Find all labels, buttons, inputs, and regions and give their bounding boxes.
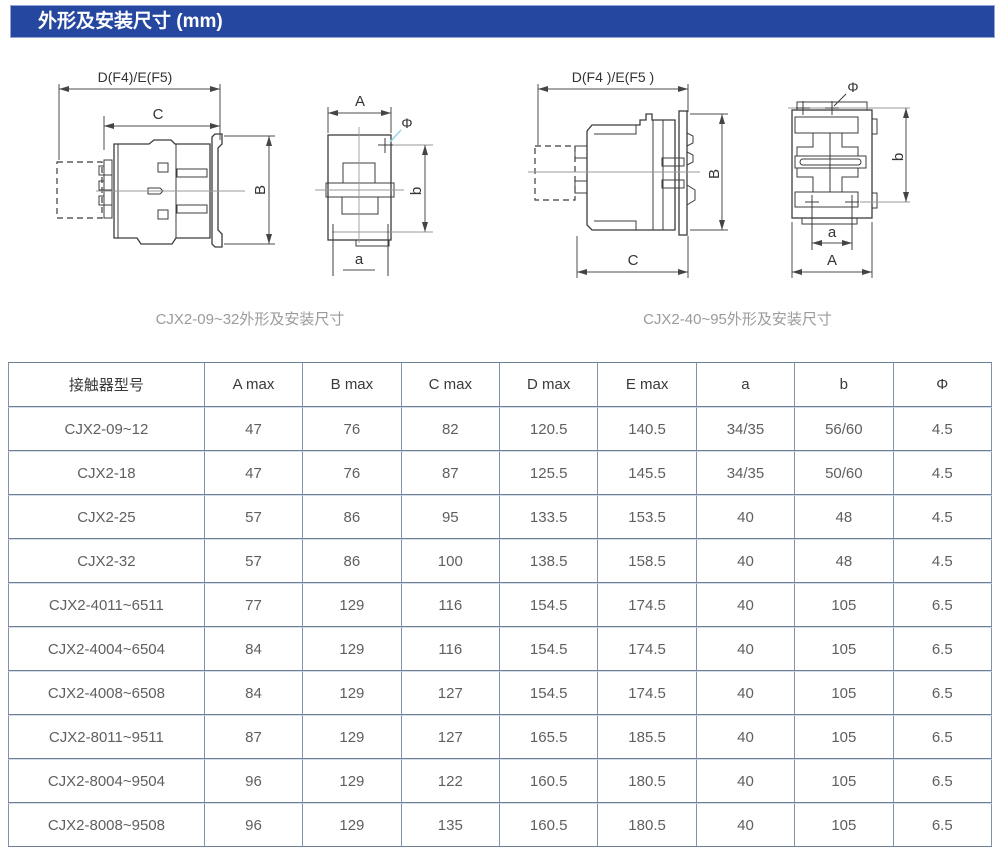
body-line [594,125,636,134]
value-cell: 105 [795,583,893,627]
value-cell: 47 [205,407,303,451]
accessory-dashed-box [535,146,575,200]
value-cell: 95 [402,495,500,539]
phi-leader-line [834,94,846,106]
step-line [797,168,813,192]
model-cell: CJX2-32 [8,539,205,583]
value-cell: 122 [402,759,500,803]
value-cell: 6.5 [894,803,992,847]
value-cell: 154.5 [500,583,598,627]
value-cell: 185.5 [598,715,696,759]
side-lug [872,119,877,134]
value-cell: 105 [795,759,893,803]
value-cell: 125.5 [500,451,598,495]
upper-block [795,117,858,133]
value-cell: 96 [205,759,303,803]
value-cell: 76 [303,451,401,495]
model-cell: CJX2-4004~6504 [8,627,205,671]
value-cell: 160.5 [500,803,598,847]
value-cell: 6.5 [894,671,992,715]
value-cell: 48 [795,539,893,583]
value-cell: 105 [795,671,893,715]
lower-block [795,192,858,207]
value-cell: 96 [205,803,303,847]
value-cell: 160.5 [500,759,598,803]
value-cell: 57 [205,539,303,583]
slot [158,210,168,219]
value-cell: 129 [303,759,401,803]
slot [662,158,684,166]
value-cell: 116 [402,583,500,627]
value-cell: 86 [303,495,401,539]
column-header: b [795,362,893,407]
value-cell: 135 [402,803,500,847]
value-cell: 174.5 [598,627,696,671]
slot [177,205,207,213]
value-cell: 120.5 [500,407,598,451]
value-cell: 133.5 [500,495,598,539]
value-cell: 40 [697,495,795,539]
dim-label-C: C [628,252,639,269]
section-title: 外形及安装尺寸 (mm) [38,11,223,32]
table-row: CJX2-09~12477682120.5140.534/3556/604.5 [8,407,992,451]
dimension-drawing-small-contactor: D(F4)/E(F5) C B [30,55,500,305]
table-row: CJX2-4004~650484129116154.5174.5401056.5 [8,627,992,671]
rail-hook [687,133,693,146]
model-cell: CJX2-25 [8,495,205,539]
table-row: CJX2-4008~650884129127154.5174.5401056.5 [8,671,992,715]
table-row: CJX2-8011~951187129127165.5185.5401056.5 [8,715,992,759]
column-header: E max [598,362,696,407]
value-cell: 100 [402,539,500,583]
value-cell: 34/35 [697,407,795,451]
value-cell: 87 [205,715,303,759]
value-cell: 40 [697,583,795,627]
mounting-plate [679,111,687,235]
table-row: CJX2-8004~950496129122160.5180.5401056.5 [8,759,992,803]
table-row: CJX2-325786100138.5158.540484.5 [8,539,992,583]
value-cell: 145.5 [598,451,696,495]
value-cell: 105 [795,715,893,759]
table-row: CJX2-4011~651177129116154.5174.5401056.5 [8,583,992,627]
table-body: CJX2-09~12477682120.5140.534/3556/604.5C… [8,407,992,847]
value-cell: 6.5 [894,627,992,671]
dim-label-A: A [355,93,365,110]
terminal-strip [104,160,112,218]
value-cell: 140.5 [598,407,696,451]
value-cell: 6.5 [894,583,992,627]
column-header: 接触器型号 [8,362,205,407]
value-cell: 174.5 [598,583,696,627]
lower-block [342,197,378,214]
figure-caption-small: CJX2-09~32外形及安装尺寸 [30,310,470,330]
step-line [842,133,858,156]
dimension-drawing-large-contactor: D(F4 )/E(F5 ) B C [520,55,980,305]
slot [177,169,207,177]
dim-label-D: D(F4)/E(F5) [98,69,173,85]
value-cell: 174.5 [598,671,696,715]
table-row: CJX2-8008~950896129135160.5180.5401056.5 [8,803,992,847]
value-cell: 4.5 [894,451,992,495]
model-cell: CJX2-09~12 [8,407,205,451]
dim-label-b: b [890,153,907,161]
value-cell: 153.5 [598,495,696,539]
value-cell: 105 [795,803,893,847]
value-cell: 40 [697,671,795,715]
value-cell: 56/60 [795,407,893,451]
accessory-dashed-box [57,162,102,218]
table-header-row: 接触器型号A maxB maxC maxD maxE maxabΦ [8,362,992,407]
value-cell: 127 [402,671,500,715]
value-cell: 129 [303,627,401,671]
body-line [594,221,636,230]
terminal-lug [575,146,587,158]
model-cell: CJX2-8004~9504 [8,759,205,803]
dim-label-b: b [408,187,425,195]
value-cell: 129 [303,583,401,627]
value-cell: 50/60 [795,451,893,495]
value-cell: 154.5 [500,627,598,671]
value-cell: 40 [697,539,795,583]
value-cell: 116 [402,627,500,671]
side-view-small: D(F4)/E(F5) C B [57,69,275,247]
dimensions-table: 接触器型号A maxB maxC maxD maxE maxabΦ CJX2-0… [8,362,992,847]
column-header: B max [303,362,401,407]
rail-hook [687,185,695,205]
model-cell: CJX2-18 [8,451,205,495]
value-cell: 6.5 [894,759,992,803]
dim-label-C: C [153,106,164,123]
value-cell: 82 [402,407,500,451]
dim-label-a: a [355,251,364,268]
value-cell: 84 [205,627,303,671]
value-cell: 105 [795,627,893,671]
mounting-plate [212,134,222,247]
value-cell: 129 [303,803,401,847]
value-cell: 129 [303,715,401,759]
value-cell: 180.5 [598,759,696,803]
value-cell: 4.5 [894,407,992,451]
table-row: CJX2-25578695133.5153.540484.5 [8,495,992,539]
value-cell: 4.5 [894,539,992,583]
slot [662,180,684,188]
value-cell: 129 [303,671,401,715]
column-header: a [697,362,795,407]
step-line [842,168,858,192]
figure-caption-large: CJX2-40~95外形及安装尺寸 [520,310,955,330]
value-cell: 154.5 [500,671,598,715]
bottom-foot [356,240,389,246]
column-header: C max [402,362,500,407]
value-cell: 40 [697,803,795,847]
value-cell: 6.5 [894,715,992,759]
dim-label-a: a [828,224,837,241]
model-cell: CJX2-4008~6508 [8,671,205,715]
dim-label-A: A [827,252,837,269]
side-view-large: D(F4 )/E(F5 ) B C [528,69,728,278]
value-cell: 57 [205,495,303,539]
column-header: D max [500,362,598,407]
value-cell: 40 [697,627,795,671]
value-cell: 180.5 [598,803,696,847]
side-lug [872,193,877,208]
front-view-small: A Φ b a [315,93,433,276]
dim-label-phi: Φ [847,79,858,95]
value-cell: 158.5 [598,539,696,583]
dim-label-B: B [252,185,269,195]
value-cell: 40 [697,715,795,759]
value-cell: 77 [205,583,303,627]
value-cell: 138.5 [500,539,598,583]
terminal-lug [575,181,587,193]
model-cell: CJX2-8011~9511 [8,715,205,759]
column-header: A max [205,362,303,407]
slot [158,163,168,172]
rail-hook [687,152,693,165]
front-view-large: Φ b a A [788,79,910,278]
model-cell: CJX2-8008~9508 [8,803,205,847]
value-cell: 48 [795,495,893,539]
step-line [797,133,813,156]
value-cell: 165.5 [500,715,598,759]
value-cell: 127 [402,715,500,759]
value-cell: 87 [402,451,500,495]
value-cell: 47 [205,451,303,495]
dim-label-phi: Φ [401,115,412,131]
table-row: CJX2-18477687125.5145.534/3550/604.5 [8,451,992,495]
model-cell: CJX2-4011~6511 [8,583,205,627]
value-cell: 86 [303,539,401,583]
dim-label-B: B [706,169,723,179]
dim-label-D: D(F4 )/E(F5 ) [572,69,654,85]
value-cell: 40 [697,759,795,803]
value-cell: 84 [205,671,303,715]
value-cell: 34/35 [697,451,795,495]
value-cell: 76 [303,407,401,451]
section-header: 外形及安装尺寸 (mm) [10,5,995,38]
column-header: Φ [894,362,992,407]
value-cell: 4.5 [894,495,992,539]
contactor-front-outline [328,135,391,240]
